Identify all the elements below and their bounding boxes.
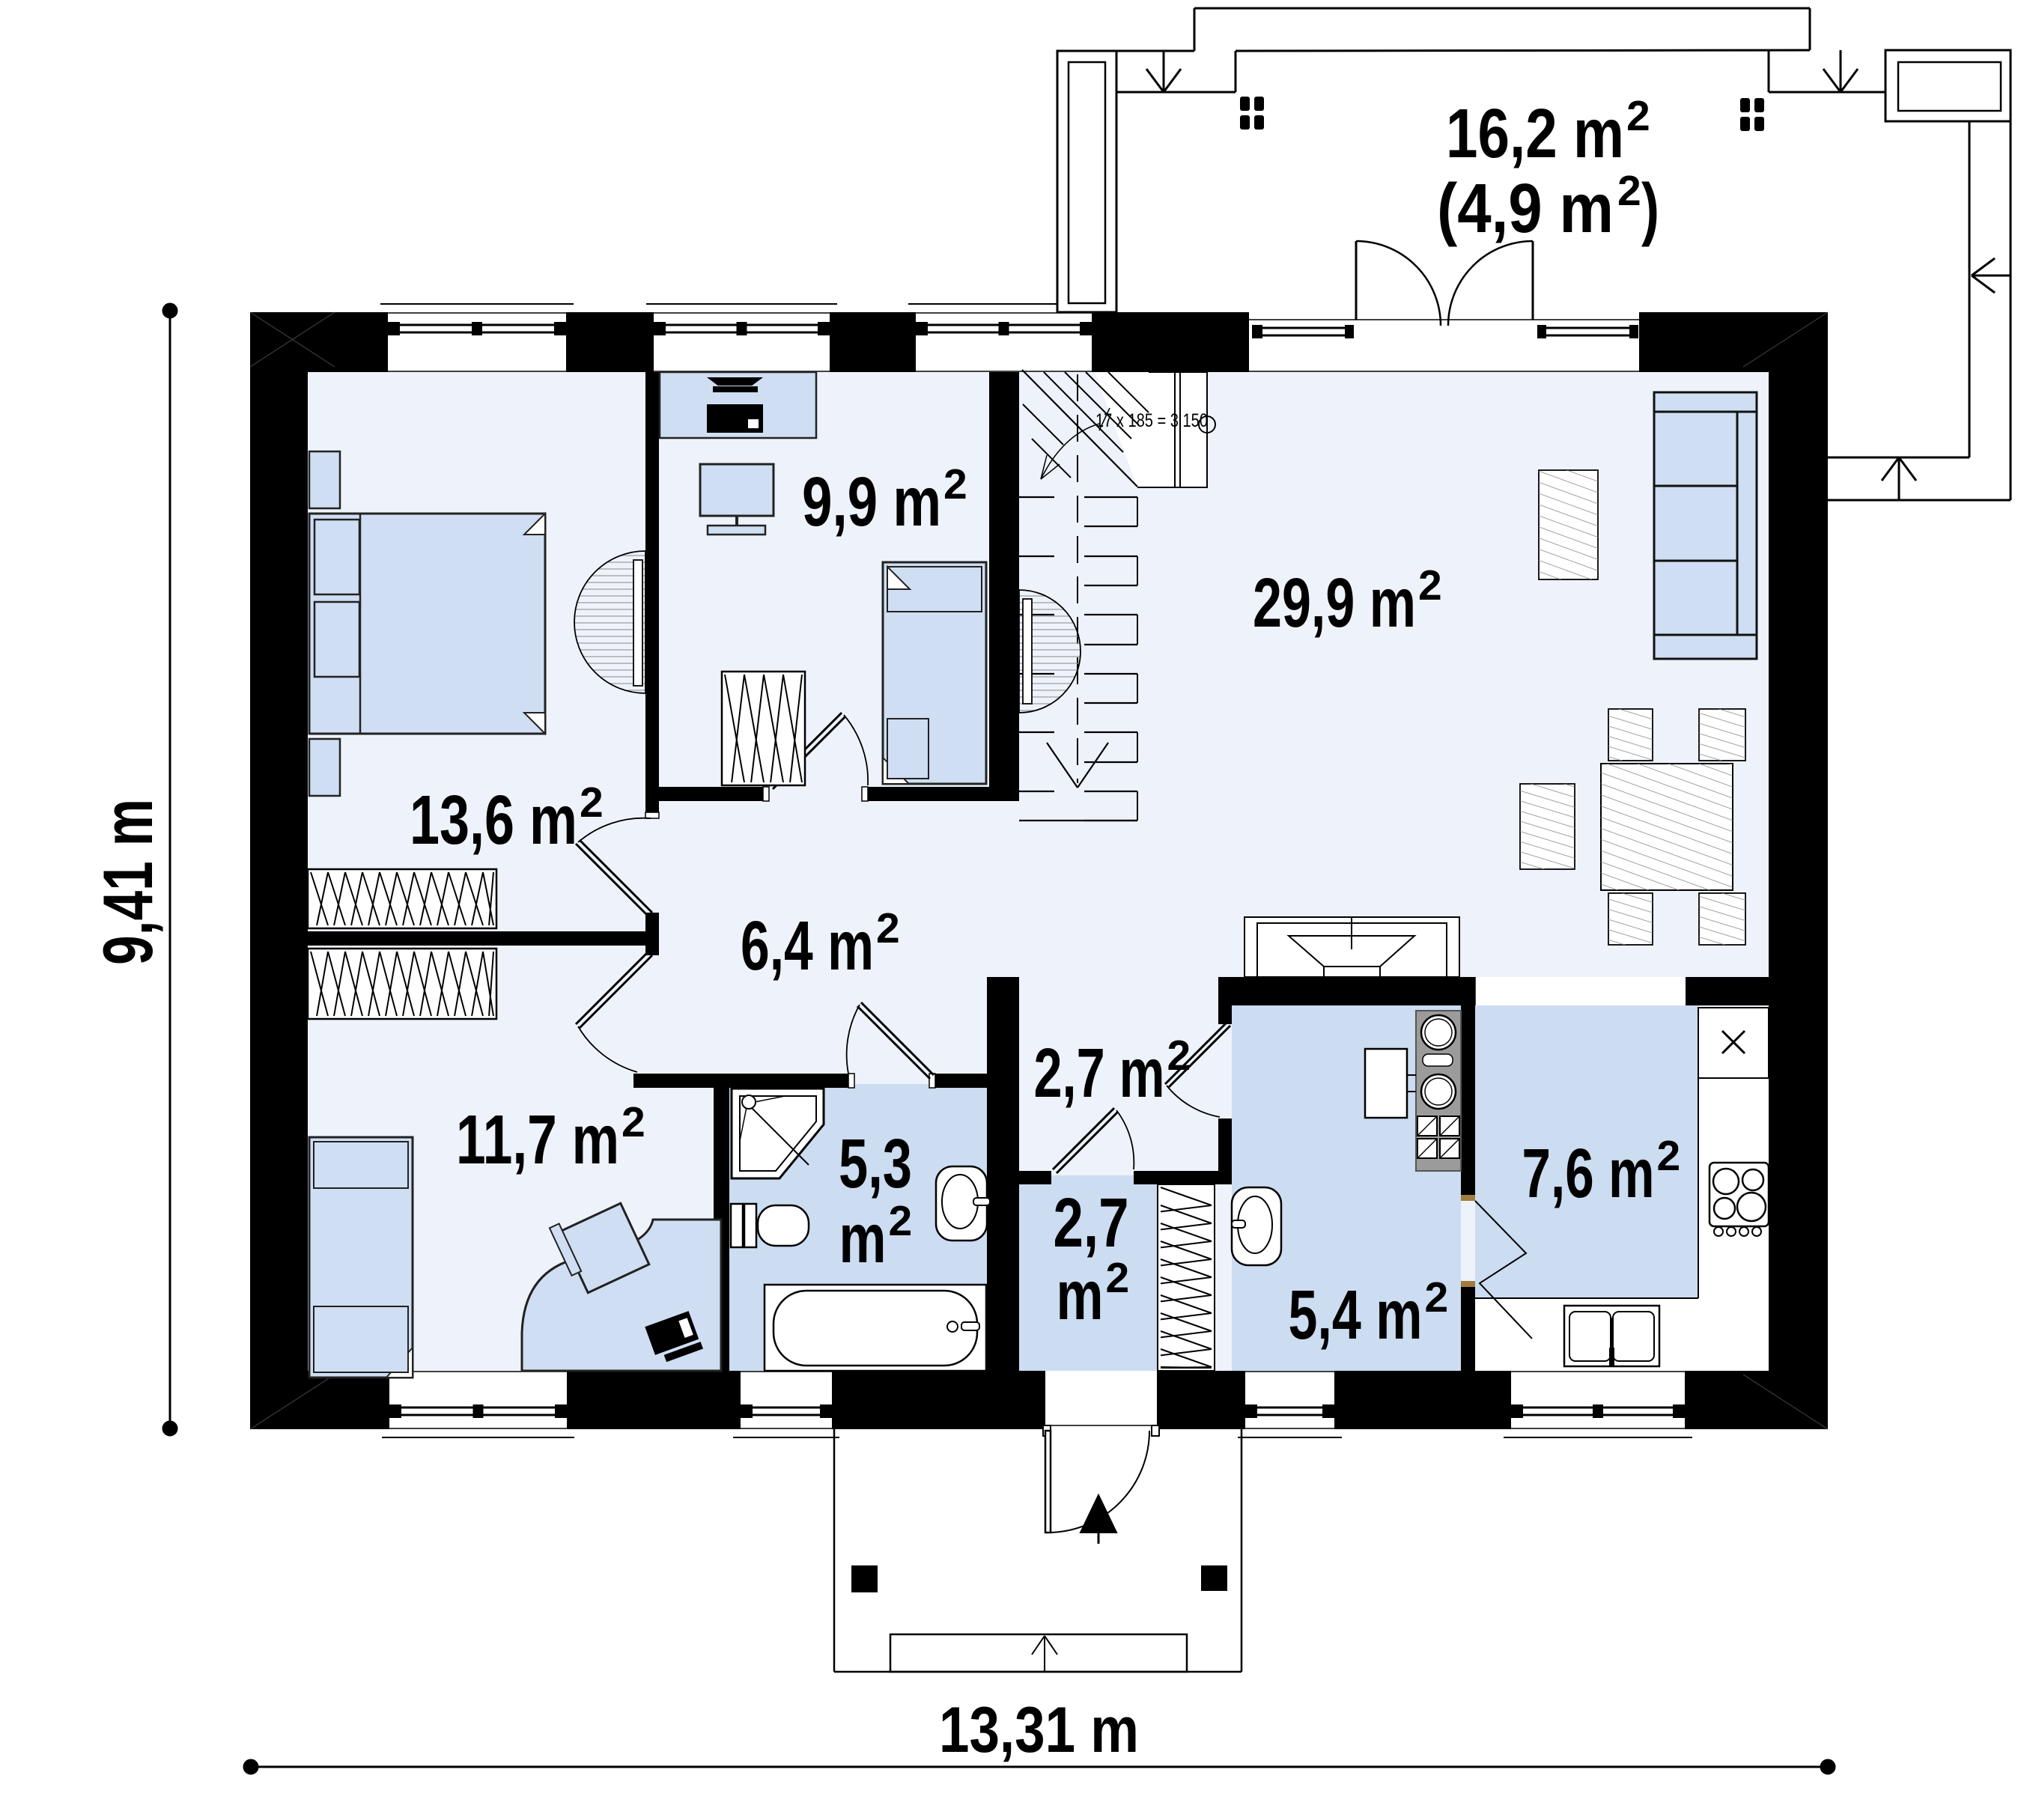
svg-text:2: 2 [580,779,604,827]
svg-text:2: 2 [1106,1254,1130,1302]
svg-text:17 x 185 = 3 150: 17 x 185 = 3 150 [1095,410,1208,431]
svg-text:2: 2 [1418,561,1442,609]
svg-text:2: 2 [1626,92,1650,140]
svg-text:5,3: 5,3 [839,1124,912,1202]
svg-text:16,2 m: 16,2 m [1446,94,1624,172]
svg-text:9,41 m: 9,41 m [88,799,167,965]
svg-text:): ) [1641,169,1659,247]
svg-text:2: 2 [1425,1273,1449,1321]
svg-text:m: m [839,1199,887,1277]
svg-text:2: 2 [1617,167,1641,215]
svg-text:2,7: 2,7 [1054,1184,1129,1261]
svg-text:13,6 m: 13,6 m [410,781,577,859]
svg-text:m: m [1057,1256,1104,1334]
svg-text:29,9 m: 29,9 m [1253,564,1416,642]
svg-text:6,4 m: 6,4 m [741,907,874,984]
svg-text:2,7 m: 2,7 m [1034,1034,1165,1112]
svg-text:5,4 m: 5,4 m [1289,1276,1423,1354]
svg-text:2: 2 [889,1197,913,1245]
svg-text:9,9 m: 9,9 m [802,463,941,541]
svg-text:2: 2 [1657,1132,1681,1180]
svg-text:7,6 m: 7,6 m [1522,1134,1655,1212]
svg-text:(4,9 m: (4,9 m [1437,169,1614,247]
svg-text:2: 2 [1167,1032,1191,1080]
svg-text:2: 2 [876,904,900,952]
svg-text:11,7 m: 11,7 m [456,1101,619,1178]
svg-text:2: 2 [622,1098,645,1146]
svg-text:2: 2 [943,460,967,508]
svg-text:13,31 m: 13,31 m [939,1694,1139,1766]
